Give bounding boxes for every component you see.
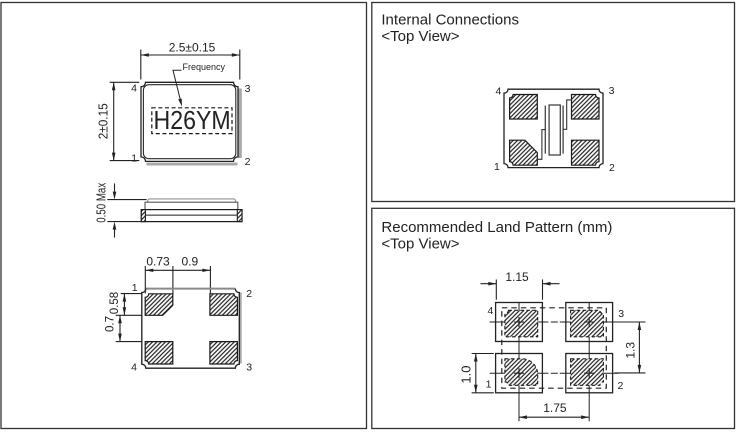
svg-text:0.9: 0.9 xyxy=(182,254,199,268)
svg-text:0.50 Max: 0.50 Max xyxy=(95,182,109,223)
svg-text:3: 3 xyxy=(245,83,251,95)
svg-text:2: 2 xyxy=(609,162,615,174)
svg-text:Internal Connections: Internal Connections xyxy=(381,11,519,28)
svg-text:4: 4 xyxy=(131,361,137,373)
svg-text:4: 4 xyxy=(495,85,501,97)
svg-text:1.75: 1.75 xyxy=(543,401,567,415)
svg-text:0.58: 0.58 xyxy=(109,292,121,314)
svg-text:4: 4 xyxy=(487,305,493,317)
svg-text:1.3: 1.3 xyxy=(624,342,638,359)
svg-text:1: 1 xyxy=(494,161,500,173)
svg-text:3: 3 xyxy=(246,361,252,373)
svg-text:2: 2 xyxy=(617,380,623,392)
svg-text:3: 3 xyxy=(618,308,624,320)
svg-text:2±0.15: 2±0.15 xyxy=(95,103,110,139)
svg-text:1.0: 1.0 xyxy=(458,366,473,384)
svg-text:4: 4 xyxy=(131,82,137,94)
svg-text:Recommended Land Pattern (mm): Recommended Land Pattern (mm) xyxy=(381,219,612,236)
svg-text:2.5±0.15: 2.5±0.15 xyxy=(169,41,216,55)
svg-text:3: 3 xyxy=(609,85,615,97)
svg-text:1: 1 xyxy=(131,152,137,164)
svg-text:1: 1 xyxy=(132,282,138,294)
svg-text:0.73: 0.73 xyxy=(146,254,170,268)
svg-text:1.15: 1.15 xyxy=(505,270,529,284)
svg-text:<Top View>: <Top View> xyxy=(381,28,459,45)
svg-text:1: 1 xyxy=(486,379,492,391)
svg-text:H26YM: H26YM xyxy=(154,107,231,135)
svg-text:2: 2 xyxy=(245,156,251,168)
svg-text:2: 2 xyxy=(246,288,252,300)
svg-text:Frequency: Frequency xyxy=(183,62,226,72)
svg-text:0.7: 0.7 xyxy=(104,316,116,332)
svg-text:<Top View>: <Top View> xyxy=(381,236,459,253)
